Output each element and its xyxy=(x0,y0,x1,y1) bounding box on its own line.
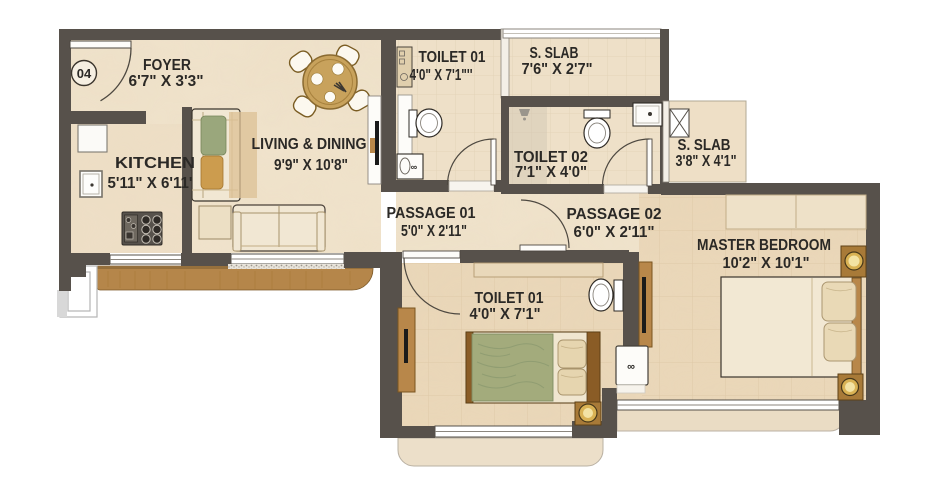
svg-text:4'0" X 7'1": 4'0" X 7'1" xyxy=(470,306,541,323)
svg-text:10'2" X 10'1": 10'2" X 10'1" xyxy=(723,255,810,272)
svg-text:TOILET 01: TOILET 01 xyxy=(475,290,544,307)
svg-text:PASSAGE 01: PASSAGE 01 xyxy=(387,205,476,222)
svg-text:6'7" X 3'3": 6'7" X 3'3" xyxy=(129,73,204,90)
svg-text:7'6" X 2'7": 7'6" X 2'7" xyxy=(522,61,593,78)
svg-text:7'1" X 4'0": 7'1" X 4'0" xyxy=(515,164,587,181)
svg-text:04: 04 xyxy=(77,66,92,81)
svg-text:∞: ∞ xyxy=(411,162,418,172)
svg-text:MASTER BEDROOM: MASTER BEDROOM xyxy=(697,237,831,254)
svg-text:∞: ∞ xyxy=(627,361,635,373)
svg-text:S. SLAB: S. SLAB xyxy=(530,45,579,62)
svg-text:9'9" X 10'8": 9'9" X 10'8" xyxy=(274,157,348,174)
svg-text:TOILET 01: TOILET 01 xyxy=(419,49,486,66)
svg-text:4'0" X 7'1"'': 4'0" X 7'1"'' xyxy=(410,67,473,84)
svg-text:FOYER: FOYER xyxy=(143,57,191,74)
svg-text:6'0" X 2'11": 6'0" X 2'11" xyxy=(574,224,655,241)
svg-text:PASSAGE 02: PASSAGE 02 xyxy=(567,206,662,223)
svg-text:5'0" X 2'11": 5'0" X 2'11" xyxy=(401,223,467,240)
svg-text:LIVING & DINING: LIVING & DINING xyxy=(252,136,367,153)
svg-text:3'8" X 4'1": 3'8" X 4'1" xyxy=(676,153,737,170)
svg-text:S. SLAB: S. SLAB xyxy=(678,137,731,154)
svg-text:KITCHEN: KITCHEN xyxy=(115,155,195,172)
svg-text:5'11" X 6'11': 5'11" X 6'11' xyxy=(108,175,193,192)
